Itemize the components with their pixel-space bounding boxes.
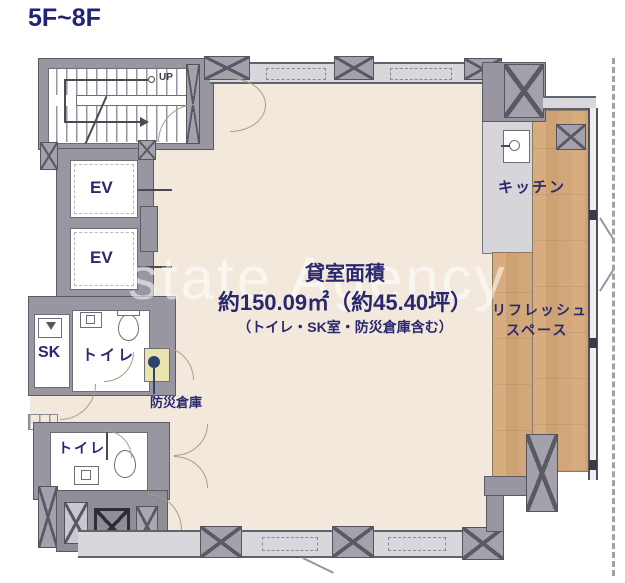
sk-room-label: SK [38,344,60,362]
area-info: 貸室面積 約150.09㎡（約45.40坪） （トイレ・SK室・防災倉庫含む） [178,262,512,336]
refresh-space-wood-floor [532,110,589,472]
bottom-window-opening-2 [388,537,446,551]
toilet1-bowl [118,314,139,341]
stair-arrow-left [64,79,66,123]
elevator-2-label: EV [90,248,113,268]
column-top-right [504,64,544,118]
refresh-space-label-line2: スペース [506,320,568,340]
top-window-opening-1 [266,68,326,80]
column-refresh-top [556,124,586,150]
floor-plan: 5F~8F UP EV EV [0,0,625,583]
toilet1-tank [117,310,140,316]
stair-landing [76,95,188,106]
area-note: （トイレ・SK室・防災倉庫含む） [178,319,512,337]
area-size: 約150.09㎡（約45.40坪） [178,289,512,317]
stair-arrowhead [140,117,149,127]
refresh-right-wall [588,108,598,480]
column-top-1 [204,56,250,80]
elevator-1-label: EV [90,178,113,198]
column-bottom-2 [332,526,374,558]
step-wall-vertical [486,494,504,532]
column-bottom-1 [200,526,242,558]
elevator-hall-pier [140,206,158,252]
sk-mop-sink-drain [46,322,56,330]
column-step-right [526,434,558,512]
right-wall-mullion-2 [589,338,597,348]
stair-arrow-top [64,79,148,81]
top-window-opening-2 [390,68,452,80]
boundary-dashed-line [612,58,615,576]
step-wall-horizontal [484,476,532,496]
page-title: 5F~8F [28,4,101,33]
bottom-window-opening-1 [262,537,318,551]
toilet1-sink-basin [86,315,95,324]
right-wall-mullion-3 [589,460,597,470]
kitchen-faucet-stem [501,145,510,147]
bottom-door-swing-line [303,557,334,573]
column-stair-ev-corner [40,142,58,170]
stair-arrow-bottom [64,121,140,123]
column-ev-hall-corner [138,140,156,160]
up-circle-icon [148,76,155,83]
toilet2-label: トイレ [58,438,106,458]
toilet2-sink-basin [81,470,91,480]
area-heading: 貸室面積 [178,262,512,287]
kitchen-faucet-icon [509,140,520,151]
disaster-storage-dot [148,356,160,368]
column-bottom-left [38,486,58,548]
stair-up-label: UP [159,72,173,83]
toilet1-label: トイレ [82,344,136,365]
disaster-storage-label: 防災倉庫 [150,392,202,411]
right-wall-mullion-1 [589,210,597,220]
elevator-2-door-line [138,266,172,268]
kitchen-label: キッチン [498,176,566,197]
elevator-1-door-line [138,189,172,191]
column-top-2 [334,56,374,80]
disaster-storage-leader-line [153,368,155,394]
